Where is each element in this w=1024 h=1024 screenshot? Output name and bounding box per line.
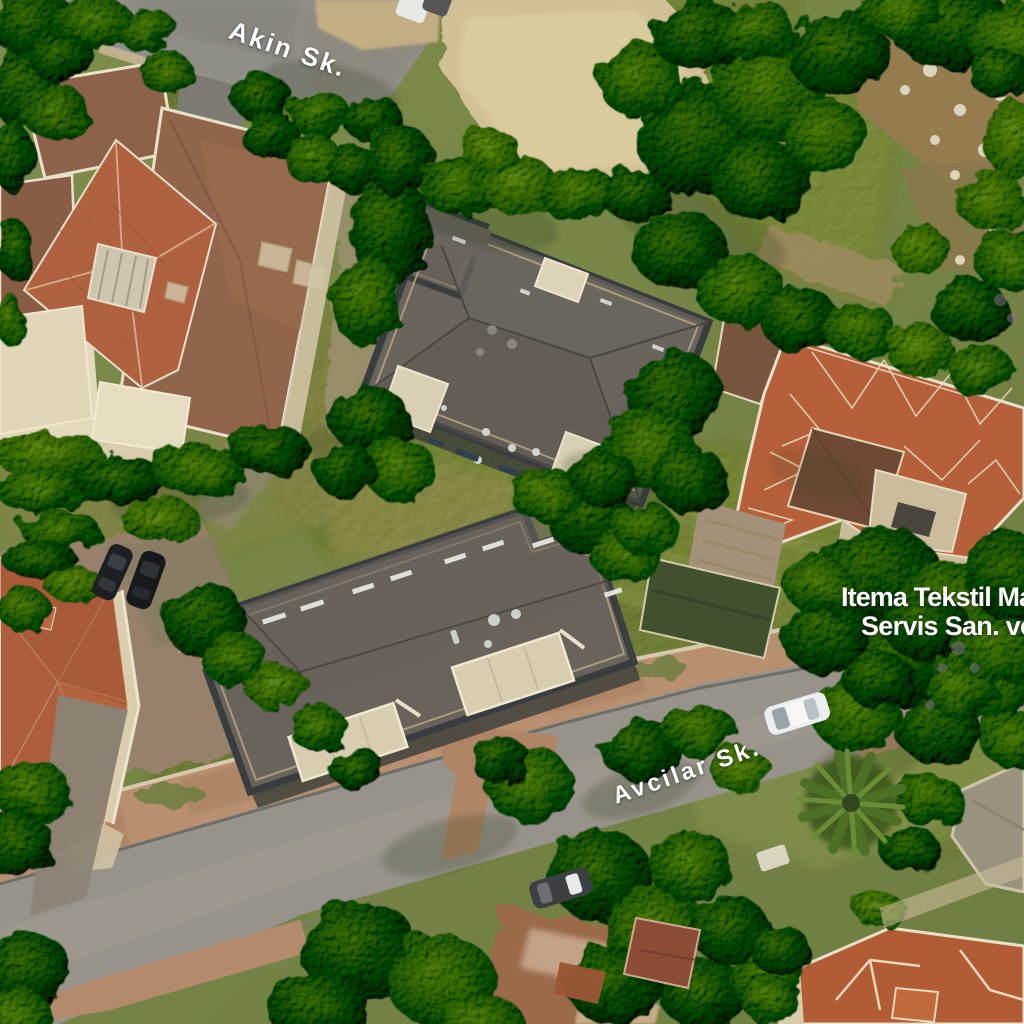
svg-text:Servis San. ve: Servis San. ve [861,611,1024,641]
svg-text:Itema Tekstil Ma: Itema Tekstil Ma [841,582,1024,612]
